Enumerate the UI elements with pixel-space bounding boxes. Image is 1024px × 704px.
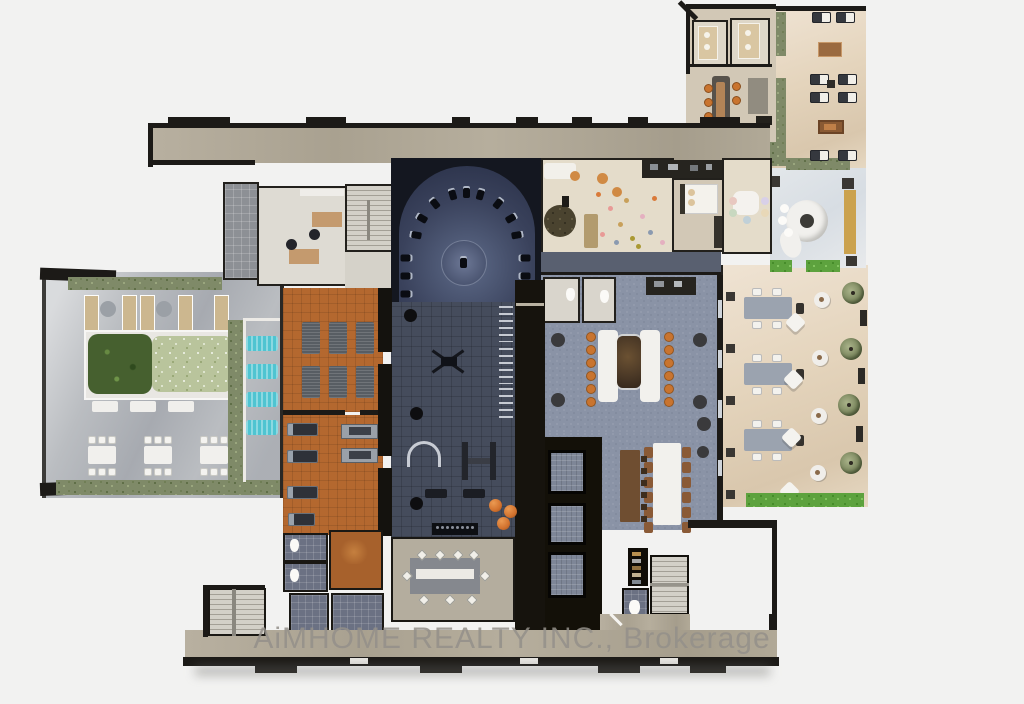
office-chair-1 [309, 229, 320, 240]
planter-cube-b [842, 178, 854, 189]
kitchen-item [650, 164, 658, 170]
office-shelf [300, 189, 344, 196]
lounge-chair-orange [586, 384, 596, 394]
patio-chair [210, 436, 218, 444]
lounge-chair-orange [586, 345, 596, 355]
window-gap [718, 350, 722, 368]
terrace-chair [752, 321, 762, 329]
elevator-car-1 [548, 503, 586, 545]
sun-lounger-3 [178, 295, 193, 335]
bar-stool [704, 98, 713, 107]
dining-chair [682, 492, 691, 503]
terrace-bench-0 [860, 310, 867, 326]
spin-bike [401, 255, 413, 262]
spin-bike [519, 273, 531, 280]
crafts-chair [761, 209, 769, 217]
sun-lounger-1 [122, 295, 137, 335]
work-table-inner [416, 569, 474, 579]
window-mullion-2 [452, 117, 470, 124]
terrace-chair [752, 453, 762, 461]
bed-towel [745, 30, 751, 36]
deck-lounger-5 [838, 92, 857, 103]
window-mullion-1 [306, 117, 346, 124]
toy-scatter [614, 240, 619, 245]
planter-bench-1 [130, 401, 156, 412]
side-table-1 [156, 301, 172, 317]
round-table-item [815, 470, 820, 475]
kids-pouf [570, 171, 580, 181]
planter-cube-3 [726, 448, 735, 457]
wall-rig-1 [499, 348, 513, 384]
guest-headboard [680, 184, 685, 214]
toilet [600, 290, 609, 303]
teal-lounger-2 [246, 392, 278, 407]
upper-terrace-wall [770, 6, 866, 11]
elevator-car-0 [548, 450, 586, 494]
toy-scatter [652, 196, 657, 201]
spa-top-wall [686, 4, 776, 9]
patio-chair [108, 436, 116, 444]
yoga-mat [329, 366, 347, 398]
kitchen-item [654, 281, 664, 287]
bed-towel [704, 44, 710, 50]
seat-cushion-1 [778, 216, 787, 225]
buffet-stool [641, 504, 647, 510]
toy-scatter [648, 230, 653, 235]
patio-chair [144, 468, 152, 476]
bar-stool [732, 82, 741, 91]
patio-chair [200, 468, 208, 476]
patio-chair [210, 468, 218, 476]
treadmill-deck [349, 427, 371, 435]
spin-bike [519, 255, 531, 262]
tree-trunk [847, 403, 851, 407]
gym-bench [425, 489, 447, 498]
buffet-stool [641, 468, 647, 474]
kids-toy-dark [562, 196, 569, 207]
toy-scatter [608, 206, 613, 211]
building-notch [691, 528, 772, 614]
spin-bike [401, 291, 413, 298]
massage-bed-1 [698, 26, 718, 60]
terrace-table-0 [744, 297, 792, 319]
terrace-chair [772, 288, 782, 296]
stair-rail [232, 588, 236, 636]
lounge-chair-orange [664, 397, 674, 407]
notch-wall-top [688, 520, 775, 528]
brokerage-watermark: AiMHOME REALTY INC., Brokerage [250, 622, 774, 662]
sun-lounger-4 [214, 295, 229, 335]
terrace-chair [772, 354, 782, 362]
spin-bike [463, 186, 470, 198]
lounge-chair-orange [664, 332, 674, 342]
tree-trunk [851, 291, 855, 295]
machine-rail [490, 442, 496, 480]
terrace-bench-1 [858, 368, 865, 384]
dining-chair [682, 507, 691, 518]
kids-rug [544, 205, 576, 237]
dumbbell [436, 526, 439, 529]
toy-scatter [636, 244, 641, 249]
patio-chair [88, 468, 96, 476]
lounge-side-table [551, 333, 565, 347]
cardio-machine [287, 450, 318, 463]
bar-stool [732, 96, 741, 105]
kitchen-item [706, 164, 712, 170]
toy-scatter [596, 192, 601, 197]
dining-chair [682, 447, 691, 458]
terrace-chair [772, 420, 782, 428]
window-gap [718, 300, 722, 318]
dining-chair [682, 477, 691, 488]
lounge-chair-orange [586, 332, 596, 342]
dumbbell [446, 526, 449, 529]
patio-chair [154, 468, 162, 476]
dumbbell [466, 526, 469, 529]
toy-scatter [640, 214, 645, 219]
tree-trunk [849, 461, 853, 465]
lounge-chair-orange [586, 358, 596, 368]
lounge-chair-orange [664, 358, 674, 368]
shelf-item [632, 566, 641, 570]
guest-pillow [688, 189, 695, 196]
patio-table-2 [200, 446, 228, 464]
crafts-chair [729, 197, 737, 205]
lounge-side-table [693, 395, 707, 409]
planter-cube-2 [726, 396, 735, 405]
window-mullion-6 [700, 117, 740, 124]
round-seat-center [800, 214, 814, 228]
stair-wall-left [203, 585, 208, 637]
yellow-bench [844, 190, 856, 254]
spin-bike-instructor [460, 256, 467, 268]
column [404, 309, 417, 322]
corridor-under-wall [148, 160, 255, 165]
buffet-table [620, 450, 640, 522]
lounge-chair-orange [586, 371, 596, 381]
terrace-chair [752, 420, 762, 428]
upper-hedge-b1 [770, 260, 792, 272]
window-gap [718, 460, 722, 476]
teal-lounger-3 [246, 420, 278, 435]
hedge-bottom-right [746, 493, 864, 507]
round-table-item [816, 413, 821, 418]
kitchen-item [690, 165, 698, 171]
patio-chair [98, 436, 106, 444]
dome-rig [407, 441, 441, 467]
dumbbell [461, 526, 464, 529]
planter-bush [88, 334, 152, 394]
lounge-sofa-right [640, 330, 660, 402]
lounge-side-table [551, 393, 565, 407]
shelf-item [632, 580, 641, 584]
kids-pouf [612, 187, 622, 197]
terrace-chair [772, 387, 782, 395]
lounge-chair-orange [586, 397, 596, 407]
lounge-side-table [697, 417, 711, 431]
toilet [290, 569, 299, 582]
wall-rig-2 [499, 388, 513, 420]
yoga-mat [302, 322, 320, 354]
dumbbell [451, 526, 454, 529]
patio-chair [164, 468, 172, 476]
dining-window-wall [717, 432, 723, 530]
spin-bike [401, 273, 413, 280]
daybed [818, 42, 842, 57]
office-desk-2 [289, 249, 319, 264]
hedge-bottom-left [56, 480, 282, 495]
terrace-dark-chair [796, 303, 804, 314]
crafts-chair [761, 197, 769, 205]
wall-rig-0 [499, 306, 513, 342]
patio-chair [144, 436, 152, 444]
toy-scatter [624, 198, 629, 203]
patio-chair [88, 436, 96, 444]
planter-cube-0 [726, 292, 735, 301]
shelf-item [632, 552, 641, 556]
deck-lounger-0 [812, 12, 831, 23]
crafts-chair [729, 209, 737, 217]
studio-wall-seg [378, 468, 392, 536]
cardio-machine [287, 486, 318, 499]
planter-bench-0 [92, 401, 118, 412]
stair-rail [367, 200, 370, 240]
terrace-chair [752, 354, 762, 362]
hedge-right-strip [228, 320, 243, 480]
office-desk-1 [312, 212, 342, 227]
yoga-mat [356, 322, 374, 354]
column [410, 407, 423, 420]
planter-cube-c [846, 256, 857, 266]
deck-lounger-1 [836, 12, 855, 23]
window-gap [718, 400, 722, 418]
tree-trunk [849, 347, 853, 351]
bar-stool [704, 84, 713, 93]
terrace-chair [752, 288, 762, 296]
lounge-side-table [693, 333, 707, 347]
lounge-chair-orange [664, 345, 674, 355]
lounger-table [827, 80, 835, 88]
exercise-ball [497, 517, 510, 530]
window-mullion-5 [628, 117, 648, 124]
deck-lounger-7 [838, 150, 857, 161]
kitchen-item [668, 164, 678, 170]
dumbbell-rack [432, 523, 478, 535]
window-mullion-0 [168, 117, 230, 124]
sauna-glow [340, 540, 368, 564]
terrace-chair [772, 453, 782, 461]
door-mark [516, 303, 544, 306]
exercise-ball [489, 499, 502, 512]
washroom-2 [582, 277, 616, 323]
buffet-stool [641, 516, 647, 522]
stair-landing-hall [345, 252, 393, 288]
sun-lounger-0 [84, 295, 99, 335]
studio-wall-seg [378, 288, 392, 352]
window-mullion-3 [516, 117, 538, 124]
terrace-bench-2 [856, 426, 863, 442]
planter-bench-2 [168, 401, 194, 412]
patio-chair [98, 468, 106, 476]
upper-hedge-b2 [806, 260, 840, 272]
toy-scatter [630, 236, 635, 241]
hallway-carpet [541, 252, 721, 274]
toilet [290, 539, 299, 552]
yoga-mat [302, 366, 320, 398]
terrace-chair [752, 387, 762, 395]
deck-lounger-6 [810, 150, 829, 161]
toy-scatter [660, 240, 665, 245]
floor-plan-render: AiMHOME REALTY INC., Brokerage [0, 0, 1024, 704]
yoga-mat [329, 322, 347, 354]
studio-wall-seg [378, 364, 392, 456]
kids-bench [584, 214, 598, 248]
yoga-mat [356, 366, 374, 398]
stair-rail [650, 583, 689, 586]
kitchen-item [674, 281, 682, 287]
dining-side-table [697, 446, 709, 458]
toy-scatter [600, 232, 605, 237]
round-table-item [817, 355, 822, 360]
toy-scatter [618, 222, 623, 227]
kids-pouf [597, 173, 608, 184]
toilet [629, 600, 640, 615]
side-table-0 [100, 301, 116, 317]
lounge-chair-orange [664, 371, 674, 381]
vestibule [223, 182, 259, 280]
exercise-ball [504, 505, 517, 518]
office-chair-2 [286, 239, 297, 250]
patio-table-0 [88, 446, 116, 464]
patio-chair [154, 436, 162, 444]
round-table-item [819, 297, 824, 302]
lounge-chair-orange [664, 384, 674, 394]
corridor-dark-wall [515, 280, 545, 638]
terrace-chair [772, 321, 782, 329]
shelf-item [632, 559, 641, 563]
cardio-machine [287, 423, 318, 436]
teal-lounger-0 [246, 336, 278, 351]
dumbbell [456, 526, 459, 529]
path-edge-h [243, 318, 281, 321]
buffet-stool [641, 456, 647, 462]
shelf-item [632, 573, 641, 577]
treadmill-deck [349, 451, 371, 459]
teal-lounger-1 [246, 364, 278, 379]
dining-chair [682, 462, 691, 473]
dining-table [653, 443, 681, 525]
office-room [257, 186, 347, 286]
massage-bed-2 [738, 23, 760, 59]
dining-chair [644, 522, 653, 533]
building-shadow [195, 666, 770, 676]
stair-wall-top [203, 585, 265, 589]
cardio-machine [288, 513, 315, 526]
window-mullion-4 [572, 117, 592, 124]
crafts-chair [743, 216, 751, 224]
machine-seat [468, 458, 490, 464]
left-terrace-wall [42, 272, 46, 498]
deck-lounger-4 [810, 92, 829, 103]
planter-flowers [152, 336, 232, 392]
bed-towel [745, 44, 751, 50]
sun-lounger-2 [140, 295, 155, 335]
hedge-top [68, 277, 222, 290]
bed-towel [704, 32, 710, 38]
patio-chair [164, 436, 172, 444]
guest-wardrobe [714, 216, 722, 248]
planter-cube-1 [726, 344, 735, 353]
buffet-stool [641, 480, 647, 486]
deck-lounger-3 [838, 74, 857, 85]
planter-cube-4 [726, 490, 735, 499]
seat-cushion-0 [780, 204, 789, 213]
washroom-1 [543, 277, 580, 323]
spa-divider-wall [690, 64, 772, 67]
patio-chair [108, 468, 116, 476]
elevator-car-2 [548, 552, 586, 598]
guest-bed [680, 184, 718, 214]
cable-machine-base [441, 357, 457, 366]
gym-bench [463, 489, 485, 498]
patio-table-1 [144, 446, 172, 464]
seat-cushion-2 [784, 228, 793, 237]
patio-chair [220, 436, 228, 444]
patio-chair [220, 468, 228, 476]
fireplace-centerpiece [617, 336, 641, 388]
column [410, 497, 423, 510]
spa-counter [748, 78, 768, 114]
fire-table-top [824, 124, 836, 130]
buffet-stool [641, 492, 647, 498]
dumbbell [441, 526, 444, 529]
guest-pillow [688, 199, 695, 206]
patio-chair [200, 436, 208, 444]
lounge-sofa-left [598, 330, 618, 402]
dumbbell [471, 526, 474, 529]
toilet [566, 288, 575, 301]
